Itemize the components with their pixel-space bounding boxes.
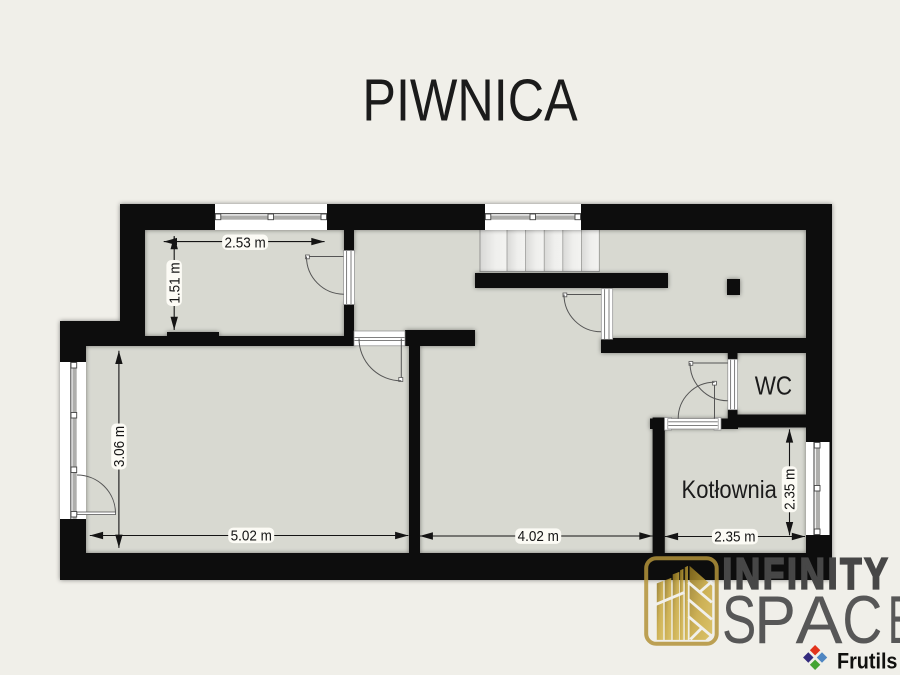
svg-text:E: E bbox=[888, 582, 900, 659]
svg-text:S: S bbox=[722, 581, 756, 658]
svg-text:P: P bbox=[754, 581, 796, 657]
svg-text:Frutils: Frutils bbox=[837, 650, 897, 674]
svg-text:5.02 m: 5.02 m bbox=[231, 528, 272, 545]
svg-text:A: A bbox=[796, 581, 844, 658]
svg-text:2.53 m: 2.53 m bbox=[224, 235, 265, 252]
svg-text:C: C bbox=[842, 583, 882, 659]
svg-text:1.51 m: 1.51 m bbox=[167, 262, 184, 303]
svg-text:PIWNICA: PIWNICA bbox=[362, 67, 578, 134]
svg-text:2.35 m: 2.35 m bbox=[782, 469, 799, 510]
svg-text:2.35 m: 2.35 m bbox=[714, 529, 755, 546]
svg-text:WC: WC bbox=[755, 372, 792, 401]
svg-text:Kotłownia: Kotłownia bbox=[682, 476, 778, 504]
svg-text:4.02 m: 4.02 m bbox=[518, 529, 559, 546]
svg-text:3.06 m: 3.06 m bbox=[111, 426, 128, 467]
